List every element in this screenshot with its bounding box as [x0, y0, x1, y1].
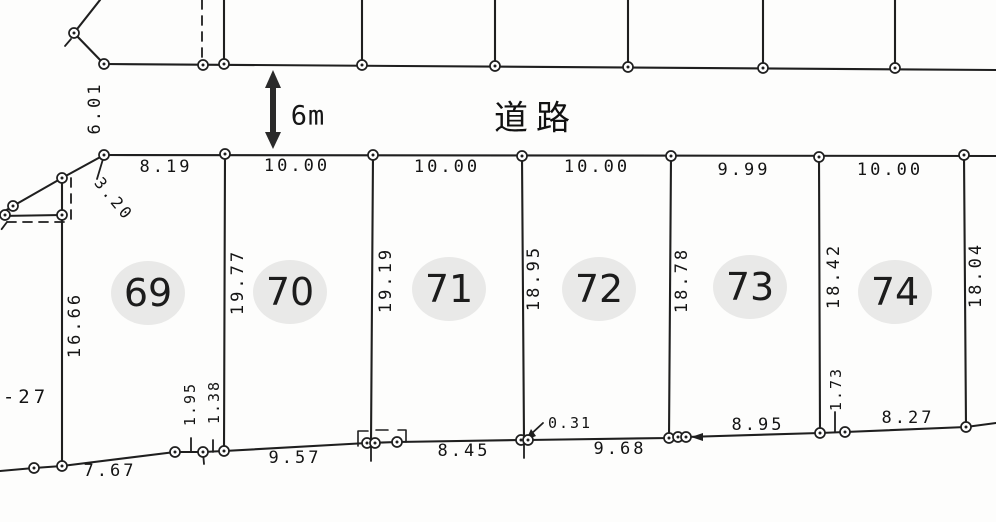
- dim-depth-5: 18.42: [824, 243, 844, 309]
- plot-number-72: 72: [562, 257, 636, 321]
- dim-rear-1: 9.57: [269, 448, 322, 468]
- dim-rear-3: 9.68: [594, 439, 647, 459]
- dim-depth-3: 18.95: [524, 245, 544, 311]
- dim-frontage-1: 10.00: [264, 156, 330, 176]
- plot-number-74: 74: [858, 260, 932, 324]
- dim-offset-0: 1.95: [181, 382, 199, 426]
- dim-frontage-3: 10.00: [564, 157, 630, 177]
- plot-number-label: 69: [124, 271, 172, 315]
- dim-depth-1: 19.77: [228, 249, 248, 315]
- dim-frontage-4: 9.99: [718, 160, 771, 180]
- plot-number-73: 73: [713, 255, 787, 319]
- plot-number-70: 70: [253, 260, 327, 324]
- dim-depth-2: 19.19: [376, 247, 396, 313]
- dim-rear-2: 8.45: [438, 441, 491, 461]
- dim-offset-2: 0.31: [548, 414, 592, 432]
- road-width-label: 6m: [291, 101, 326, 132]
- plot-number-label: 72: [575, 267, 623, 311]
- dim-depth-6: 18.04: [966, 242, 986, 308]
- dim-rear-5: 8.27: [882, 408, 935, 428]
- dim-depth-4: 18.78: [672, 247, 692, 313]
- dim-depth-0: 16.66: [65, 292, 85, 358]
- edge-label: -27: [3, 386, 49, 408]
- plot-number-label: 71: [425, 267, 473, 311]
- plot-number-label: 70: [266, 270, 314, 314]
- plot-number-label: 74: [871, 270, 919, 314]
- dim-rear-0: 7.67: [84, 461, 137, 481]
- plot-number-69: 69: [111, 261, 185, 325]
- dim-offset-1: 1.38: [205, 380, 223, 424]
- dim-frontage-2: 10.00: [414, 157, 480, 177]
- dim-frontage-0: 8.19: [140, 157, 193, 177]
- dim-road-side: 6.01: [85, 82, 105, 135]
- dim-frontage-5: 10.00: [857, 160, 923, 180]
- parcel-map: 道路 6m 6.01 8.19 10.00 10.00 10.00 9.99 1…: [0, 0, 996, 522]
- plot-number-label: 73: [726, 265, 774, 309]
- road-label: 道路: [494, 91, 578, 140]
- plot-number-71: 71: [412, 257, 486, 321]
- dim-offset-3: 1.73: [827, 367, 845, 411]
- road-width-arrow-icon: [265, 70, 281, 149]
- dim-rear-4: 8.95: [732, 415, 785, 435]
